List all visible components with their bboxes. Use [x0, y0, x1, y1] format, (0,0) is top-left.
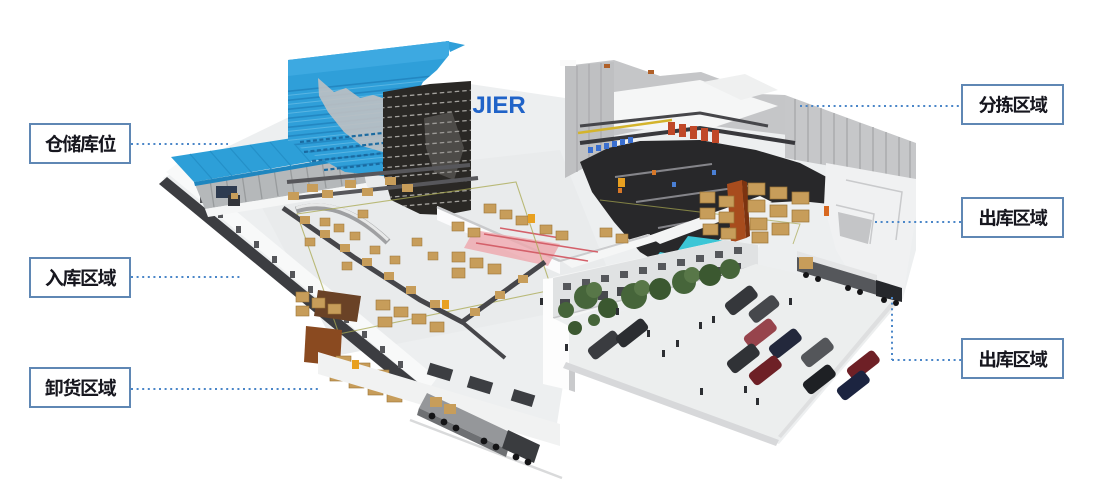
- svg-text:JIER: JIER: [472, 92, 525, 119]
